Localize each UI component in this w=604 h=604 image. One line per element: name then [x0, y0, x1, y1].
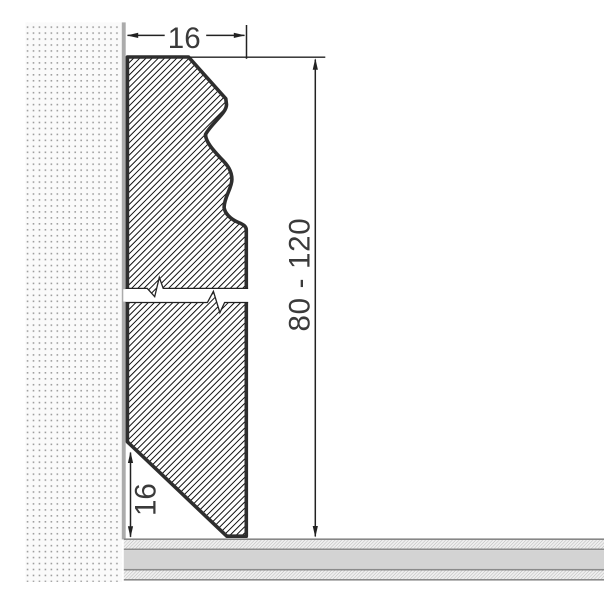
svg-text:80 - 120: 80 - 120 [284, 218, 317, 332]
svg-text:16: 16 [168, 22, 201, 55]
svg-text:16: 16 [130, 483, 163, 516]
